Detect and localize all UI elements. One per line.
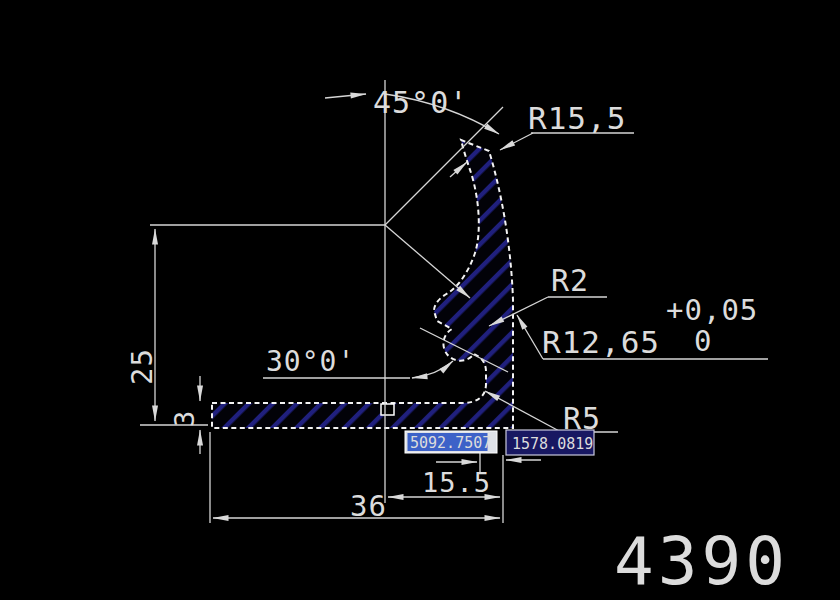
grip-marker[interactable] (381, 404, 394, 415)
label-dim-15-5: 15.5 (422, 467, 491, 498)
label-angle-30: 30°0' (266, 345, 355, 378)
label-tolerance-lower: 0 (694, 324, 712, 358)
cad-viewport: 45°0' R15,5 R2 R12,65 +0,05 0 30°0' R5 2… (0, 0, 840, 600)
dim-30-arc (412, 361, 453, 378)
label-dim-3: 3 (169, 410, 200, 427)
label-radius-r2: R2 (551, 263, 589, 298)
dynamic-input-x-value[interactable]: 5092.7507 (410, 434, 491, 452)
label-tolerance-upper: +0,05 (666, 293, 758, 327)
dim-45-arrow (325, 94, 366, 98)
label-radius-r12-65: R12,65 (542, 324, 660, 360)
label-radius-r15-5: R15,5 (528, 100, 626, 136)
part-number: 4390 (614, 523, 789, 600)
radius-pointer-line (385, 225, 470, 298)
profile-hatch (212, 140, 513, 428)
label-dim-36: 36 (350, 489, 387, 523)
label-dim-25: 25 (125, 348, 159, 385)
profile-section (212, 140, 513, 428)
dynamic-input-y-value[interactable]: 1578.0819 (512, 435, 593, 453)
label-angle-45: 45°0' (373, 85, 468, 120)
cad-canvas[interactable]: 45°0' R15,5 R2 R12,65 +0,05 0 30°0' R5 2… (0, 0, 840, 600)
leader-r12-line (517, 315, 543, 359)
dynamic-input: 5092.7507 1578.0819 (405, 430, 594, 455)
leader-r15-arrow2 (450, 162, 467, 177)
